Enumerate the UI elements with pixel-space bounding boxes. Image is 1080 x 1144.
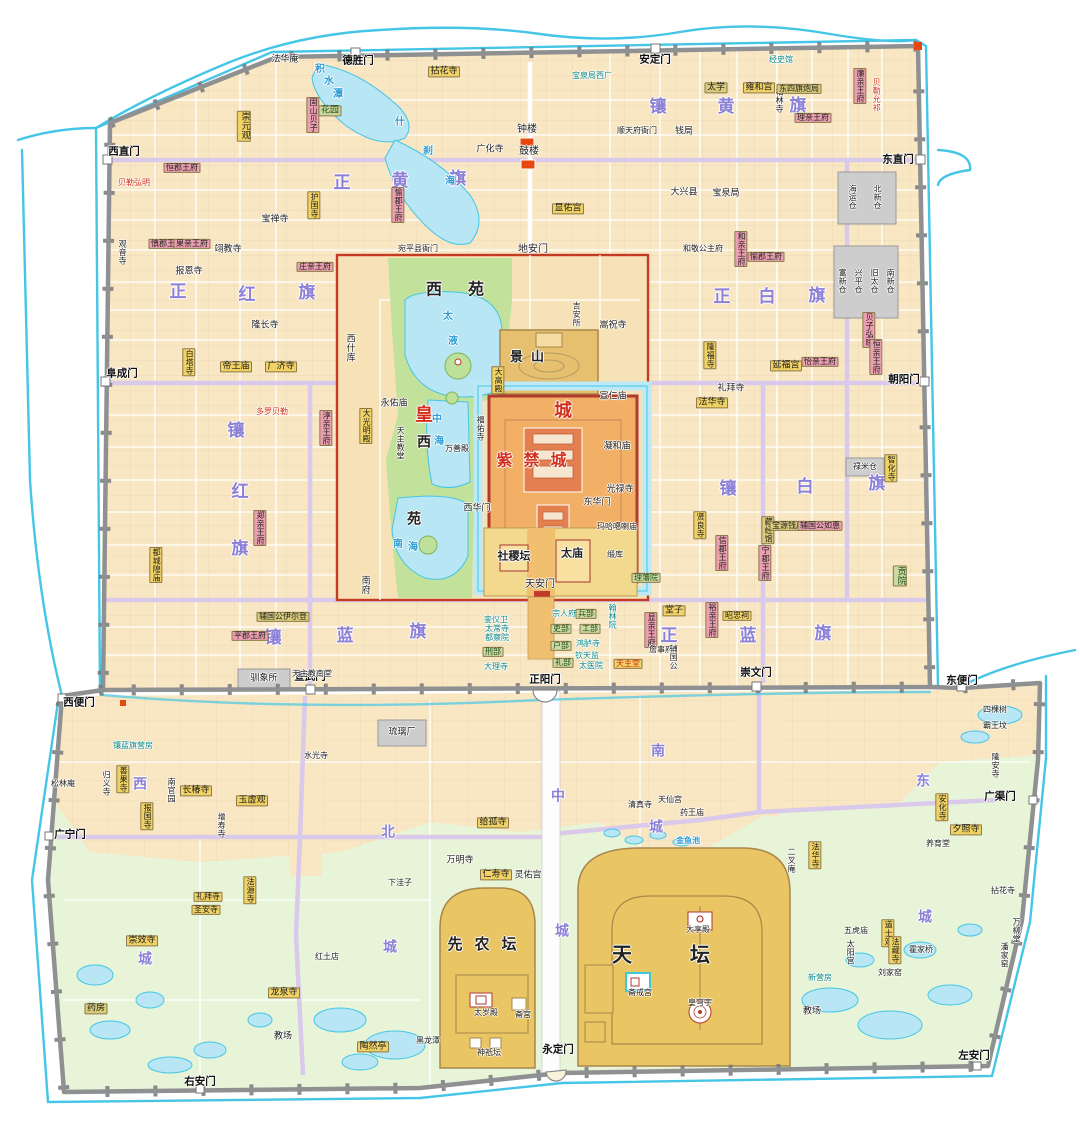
banner-label: 红 — [239, 287, 256, 305]
poi-label: 西什库 — [344, 334, 353, 363]
poi-label: 钟楼 — [517, 125, 537, 135]
poi-label: 大高殿 — [491, 366, 504, 394]
gate-label: 广渠门 — [984, 792, 1016, 803]
district-label: 中 — [551, 790, 565, 805]
poi-label: 郑亲王府 — [253, 510, 266, 546]
poi-label: 刑部 — [483, 647, 504, 657]
banner-label: 黄 — [718, 99, 735, 117]
poi-label: 光禄寺 — [606, 485, 633, 494]
area-label: 景山 — [510, 351, 552, 365]
lake-label: 液 — [448, 337, 458, 347]
lake-label: 南 — [393, 540, 403, 550]
poi-label: 法源寺 — [243, 876, 256, 904]
poi-label: 红土店 — [315, 953, 339, 961]
poi-label: 贝勒弘明 — [118, 179, 150, 187]
banner-label: 正 — [661, 628, 678, 646]
imperial-label: 紫禁城 — [496, 453, 577, 470]
poi-label: 凝和庙 — [603, 442, 630, 451]
poi-label: 显亲王府 — [644, 612, 657, 648]
poi-label: 陶然亭 — [357, 1041, 389, 1052]
poi-label: 信郡王府 — [715, 535, 728, 571]
poi-label: 崇效寺 — [126, 935, 158, 946]
poi-label: 礼部 — [553, 658, 574, 668]
gate-label: 东直门 — [882, 155, 914, 166]
beijing-historical-map: 德胜门安定门西直门东直门阜成门朝阳门宣武门正阳门崇文门东便门西便门广宁门右安门永… — [0, 0, 1080, 1144]
banner-label: 白 — [797, 479, 814, 497]
poi-label: 工部 — [580, 624, 601, 634]
poi-label: 大兴县 — [670, 188, 697, 197]
banner-label: 旗 — [299, 285, 316, 303]
poi-label: 报国寺 — [140, 802, 153, 830]
poi-label: 报恩寺 — [175, 267, 202, 276]
area-label: 西 — [417, 436, 431, 451]
poi-label: 宝泉局 — [712, 189, 739, 198]
area-label: 太庙 — [561, 547, 583, 558]
poi-label: 愉郡王府 — [391, 187, 404, 223]
area-label: 天坛 — [612, 945, 768, 966]
gate-label: 广宁门 — [54, 830, 86, 841]
district-label: 北 — [381, 826, 395, 841]
poi-label: 太阳宫 — [846, 939, 854, 965]
poi-label: 五虎庙 — [844, 927, 868, 935]
poi-label: 平郡王府 — [232, 631, 269, 641]
poi-label: 隆长寺 — [251, 321, 278, 330]
banner-label: 旗 — [232, 541, 249, 559]
poi-label: 东四旗炮局 — [777, 84, 822, 94]
poi-label: 霸王坟 — [983, 722, 1007, 730]
lake-label: 中 — [432, 415, 442, 425]
poi-label: 驯象所 — [250, 674, 277, 683]
poi-label: 和敬公主府 — [683, 245, 723, 253]
poi-label: 大光明殿 — [359, 408, 372, 444]
poi-label: 黑龙潭 — [416, 1037, 440, 1045]
poi-label: 宝泉局西厂 — [572, 72, 612, 80]
banner-label: 镶 — [720, 481, 737, 499]
poi-label: 斋宫 — [515, 1011, 531, 1019]
banner-label: 镶 — [650, 99, 667, 117]
poi-label: 南官园 — [167, 777, 175, 803]
poi-label: 都察院 — [485, 634, 509, 642]
poi-label: 法华寺 — [696, 397, 728, 408]
poi-label: 果亲王府 — [174, 239, 211, 249]
poi-label: 法藏寺 — [888, 936, 901, 964]
poi-label: 南新仓 — [886, 268, 894, 294]
poi-label: 太岁殿 — [474, 1009, 498, 1017]
poi-label: 太医院 — [579, 662, 603, 670]
district-label: 城 — [383, 941, 397, 956]
poi-label: 福佑寺 — [476, 415, 484, 441]
poi-label: 善果寺 — [116, 765, 129, 793]
gate-label: 朝阳门 — [888, 375, 920, 386]
gate-label: 西直门 — [108, 147, 140, 158]
poi-label: 兴平仓 — [854, 268, 862, 294]
area-label: 社稷坛 — [498, 550, 531, 561]
poi-label: 永佑庙 — [380, 399, 407, 408]
poi-label: 拈花寺 — [991, 887, 1015, 895]
poi-label: 帝王庙 — [220, 361, 252, 372]
poi-label: 恒郡王府 — [164, 163, 201, 173]
poi-label: 隆安寺 — [991, 752, 999, 778]
poi-label: 海运仓 — [848, 184, 856, 210]
poi-label: 宛平县衙门 — [398, 245, 438, 253]
poi-label: 教场 — [803, 1007, 821, 1016]
banner-label: 镶 — [228, 423, 245, 441]
poi-label: 智化寺 — [884, 454, 897, 482]
poi-label: 延福宫 — [770, 360, 802, 371]
poi-label: 下洼子 — [388, 879, 412, 887]
poi-label: 礼拜寺 — [717, 384, 744, 393]
area-label: 西苑 — [426, 282, 510, 299]
poi-label: 天安门 — [525, 580, 555, 590]
banner-label: 旗 — [809, 288, 826, 306]
gate-label: 永定门 — [542, 1045, 574, 1056]
poi-label: 昭忠祠 — [723, 611, 752, 621]
poi-label: 都城隍庙 — [149, 547, 162, 583]
district-label: 西 — [133, 778, 147, 793]
district-label: 城 — [918, 911, 932, 926]
poi-label: 经史馆 — [769, 56, 793, 64]
poi-label: 镶蓝旗营房 — [113, 742, 153, 750]
district-label: 城 — [138, 953, 152, 968]
poi-label: 显佑宫 — [552, 203, 584, 214]
poi-label: 辅国公伊尔登 — [257, 612, 310, 622]
poi-label: 南府 — [359, 576, 368, 595]
poi-label: 宝禅寺 — [261, 215, 288, 224]
poi-label: 玉虚观 — [236, 795, 268, 806]
poi-label: 给孤寺 — [477, 817, 509, 828]
poi-label: 旧太仓 — [870, 268, 878, 294]
poi-label: 钱局 — [675, 127, 693, 136]
banner-label: 白 — [759, 289, 776, 307]
poi-label: 天仙宫 — [658, 796, 682, 804]
poi-label: 清真寺 — [628, 801, 652, 809]
poi-label: 安化寺 — [935, 793, 948, 821]
poi-label: 水光寺 — [304, 752, 328, 760]
gate-label: 崇文门 — [740, 668, 772, 679]
gate-label: 安定门 — [639, 55, 671, 66]
poi-label: 理藩院 — [632, 573, 661, 583]
poi-label: 淳亲王府 — [319, 410, 332, 446]
poi-label: 观音寺 — [118, 239, 126, 265]
banner-label: 旗 — [815, 626, 832, 644]
poi-label: 堂子 — [662, 605, 685, 616]
lake-label: 金鱼池 — [676, 837, 700, 845]
imperial-label: 皇 — [415, 407, 433, 426]
poi-label: 鸿胪寺 — [576, 640, 600, 648]
poi-label: 龙泉寺 — [268, 987, 300, 998]
poi-label: 灵佑宫 — [514, 871, 541, 880]
poi-label: 大享殿 — [686, 926, 710, 934]
poi-label: 鼓楼 — [519, 147, 539, 157]
poi-label: 大理寺 — [484, 663, 508, 671]
poi-label: 翊教寺 — [214, 245, 241, 254]
poi-label: 增寿寺 — [217, 812, 225, 838]
poi-label: 万明寺 — [446, 856, 473, 865]
poi-label: 药房 — [84, 1003, 107, 1014]
poi-label: 多罗贝勒 — [256, 408, 288, 416]
area-label: 苑 — [407, 513, 421, 528]
poi-label: 钦天监 — [575, 652, 599, 660]
poi-label: 法华寺 — [808, 841, 821, 869]
poi-label: 潘家窑 — [1000, 942, 1008, 968]
poi-label: 裕亲王府 — [705, 602, 718, 638]
poi-label: 地安门 — [518, 245, 548, 255]
poi-label: 养育堂 — [926, 840, 950, 848]
poi-label: 辅国公如惠 — [798, 521, 843, 531]
poi-label: 教场 — [274, 1032, 292, 1041]
gate-label: 阜成门 — [106, 369, 138, 380]
poi-label: 吉安所 — [572, 301, 580, 327]
banner-label: 旗 — [869, 476, 886, 494]
banner-label: 正 — [334, 175, 351, 193]
lake-label: 海 — [445, 177, 455, 187]
banner-label: 蓝 — [337, 628, 354, 646]
gate-label: 德胜门 — [342, 56, 374, 67]
gate-label: 东便门 — [946, 676, 978, 687]
banner-label: 红 — [232, 484, 249, 502]
poi-label: 霍家桥 — [909, 946, 933, 954]
poi-label: 仁寿寺 — [480, 869, 512, 880]
poi-label: 四棵树 — [983, 706, 1007, 714]
poi-label: 崇元观 — [237, 111, 251, 142]
poi-label: 天主堂 — [614, 659, 643, 669]
poi-label: 护国寺 — [307, 191, 320, 219]
poi-label: 和亲王府 — [734, 231, 747, 267]
poi-label: 花园 — [318, 105, 341, 116]
poi-label: 愉郡王府 — [748, 252, 785, 262]
poi-label: 白塔寺 — [182, 348, 195, 376]
lake-label: 太 — [443, 312, 453, 322]
gate-label: 右安门 — [184, 1077, 216, 1088]
gate-label: 正阳门 — [529, 675, 561, 686]
imperial-label: 城 — [554, 403, 572, 422]
district-label: 南 — [651, 745, 665, 760]
poi-label: 广济寺 — [265, 361, 297, 372]
lake-label: 积 — [315, 65, 325, 75]
poi-label: 万善殿 — [445, 445, 469, 453]
lake-label: 水 — [324, 77, 334, 87]
poi-label: 顺天府衙门 — [617, 127, 657, 135]
gate-label: 左安门 — [958, 1051, 990, 1062]
poi-label: 贤良寺 — [693, 511, 706, 539]
gate-label: 西便门 — [63, 698, 95, 709]
poi-label: 贝勒允祁 — [872, 78, 880, 112]
poi-label: 皇穹宇 — [688, 999, 712, 1007]
poi-label: 西华门 — [463, 504, 490, 513]
poi-label: 兵部 — [576, 609, 597, 619]
poi-label: 药王庙 — [680, 809, 704, 817]
poi-label: 富新仓 — [838, 268, 846, 294]
poi-label: 归义寺 — [102, 770, 110, 796]
lake-label: 什 — [395, 118, 405, 128]
district-label: 东 — [916, 775, 930, 790]
poi-label: 圣安寺 — [192, 905, 221, 915]
lake-label: 海 — [408, 543, 418, 553]
poi-label: 怡亲王府 — [802, 357, 839, 367]
poi-label: 庄亲王府 — [297, 262, 334, 272]
poi-label: 神祇坛 — [477, 1049, 501, 1057]
poi-label: 玛哈噶喇庙 — [597, 523, 637, 531]
poi-label: 宁郡王府 — [758, 545, 771, 581]
lake-label: 海 — [434, 437, 444, 447]
banner-label: 正 — [714, 289, 731, 307]
poi-label: 缎库 — [607, 551, 623, 559]
banner-label: 旗 — [410, 624, 427, 642]
banner-label: 正 — [170, 284, 187, 302]
poi-label: 松林庵 — [51, 780, 75, 788]
poi-label: 拈花寺 — [428, 66, 460, 77]
poi-label: 宗人府 — [552, 610, 576, 618]
poi-label: 北新仓 — [873, 184, 881, 210]
lake-label: 刹 — [423, 147, 433, 157]
poi-label: 太学 — [704, 82, 727, 93]
district-label: 城 — [555, 925, 569, 940]
poi-label: 长椿寺 — [180, 785, 212, 796]
poi-label: 东华门 — [583, 498, 610, 507]
poi-label: 新营房 — [808, 974, 832, 982]
label-layer: 德胜门安定门西直门东直门阜成门朝阳门宣武门正阳门崇文门东便门西便门广宁门右安门永… — [0, 0, 1080, 1144]
poi-label: 隆福寺 — [703, 341, 716, 369]
poi-label: 二叉庵 — [787, 847, 795, 873]
poi-label: 户部 — [551, 641, 572, 651]
poi-label: 广化寺 — [476, 145, 503, 154]
poi-label: 吏部 — [551, 624, 572, 634]
poi-label: 琉璃厂 — [388, 728, 415, 737]
poi-label: 礼拜寺 — [194, 892, 223, 902]
district-label: 城 — [649, 821, 663, 836]
area-label: 先农坛 — [447, 937, 528, 953]
banner-label: 蓝 — [740, 628, 757, 646]
poi-label: 斋戒宫 — [628, 989, 652, 997]
poi-label: 法华庵 — [271, 55, 298, 64]
poi-label: 天主教堂 — [396, 426, 404, 460]
poi-label: 禄米仓 — [853, 463, 877, 471]
poi-label: 恒亲王府 — [869, 339, 882, 375]
poi-label: 理亲王府 — [795, 113, 832, 123]
poi-label: 夕照寺 — [950, 824, 982, 835]
poi-label: 辅国公 — [669, 644, 677, 670]
poi-label: 万柳堂 — [1012, 917, 1020, 943]
poi-label: 廉亲王府 — [853, 68, 866, 104]
poi-label: 宣仁庙 — [599, 392, 626, 401]
poi-label: 翰林院 — [608, 603, 616, 629]
poi-label: 天主教南堂 — [292, 670, 332, 678]
lake-label: 潭 — [333, 90, 343, 100]
poi-label: 刘家窑 — [878, 969, 902, 977]
poi-label: 贡院 — [893, 566, 907, 587]
poi-label: 嵩祝寺 — [599, 321, 626, 330]
poi-label: 雍和宫 — [743, 82, 775, 93]
